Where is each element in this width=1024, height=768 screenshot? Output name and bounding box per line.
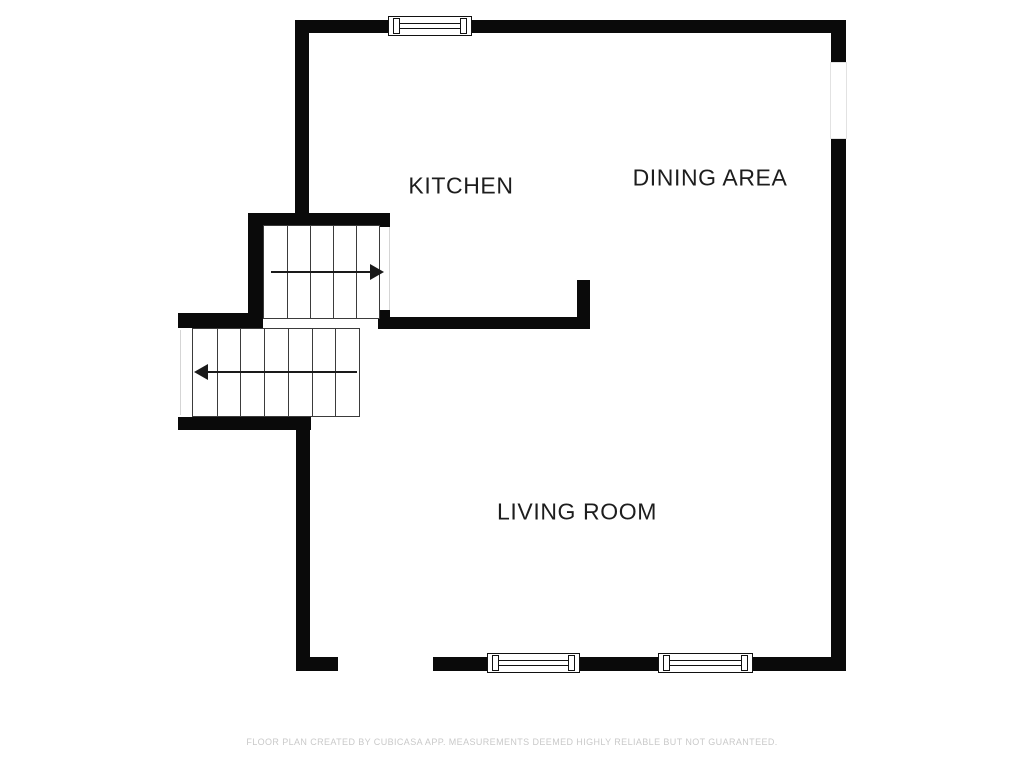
- bottom-window-1: [487, 653, 580, 673]
- window-pane-line: [498, 660, 569, 661]
- bottom-window-2: [658, 653, 753, 673]
- disclaimer-text: FLOOR PLAN CREATED BY CUBICASA APP. MEAS…: [246, 737, 777, 747]
- right-window: [830, 62, 847, 139]
- stairs-bottom-wall: [178, 417, 311, 430]
- window-frame-post: [568, 655, 575, 671]
- interior-wall: [378, 317, 590, 329]
- window-frame-post: [741, 655, 748, 671]
- top-window: [388, 16, 472, 36]
- room-label-dining-area: DINING AREA: [633, 165, 788, 192]
- stair-direction-arrow-head: [194, 364, 208, 380]
- window-frame-post: [663, 655, 670, 671]
- bottom-wall-seg-4: [753, 657, 846, 671]
- room-label-kitchen: KITCHEN: [408, 173, 513, 200]
- window-pane-line: [498, 665, 569, 666]
- living-room-left-wall: [296, 430, 310, 671]
- bottom-wall-seg-2: [433, 657, 487, 671]
- room-label-living-room: LIVING ROOM: [497, 499, 657, 526]
- window-frame-post: [492, 655, 499, 671]
- interior-wall-stub: [577, 280, 590, 318]
- upper-staircase: [263, 225, 380, 319]
- stair-direction-arrow-line: [207, 371, 357, 373]
- window-pane-line: [399, 23, 461, 24]
- floor-plan: KITCHENDINING AREALIVING ROOM FLOOR PLAN…: [0, 0, 1024, 768]
- window-pane-line: [399, 28, 461, 29]
- right-wall-upper: [831, 20, 846, 63]
- stair-direction-arrow-head: [370, 264, 384, 280]
- top-wall: [295, 20, 846, 33]
- stair-direction-arrow-line: [271, 271, 372, 273]
- stairs-mid-wall-left: [178, 313, 263, 328]
- kitchen-left-wall: [295, 20, 309, 227]
- lower-staircase: [192, 328, 360, 417]
- stairs-left-wall: [248, 213, 263, 318]
- window-frame-post: [393, 18, 400, 34]
- right-wall-lower: [831, 139, 846, 670]
- window-frame-post: [460, 18, 467, 34]
- window-pane-line: [669, 660, 742, 661]
- window-pane-line: [669, 665, 742, 666]
- bottom-wall-seg-3: [580, 657, 658, 671]
